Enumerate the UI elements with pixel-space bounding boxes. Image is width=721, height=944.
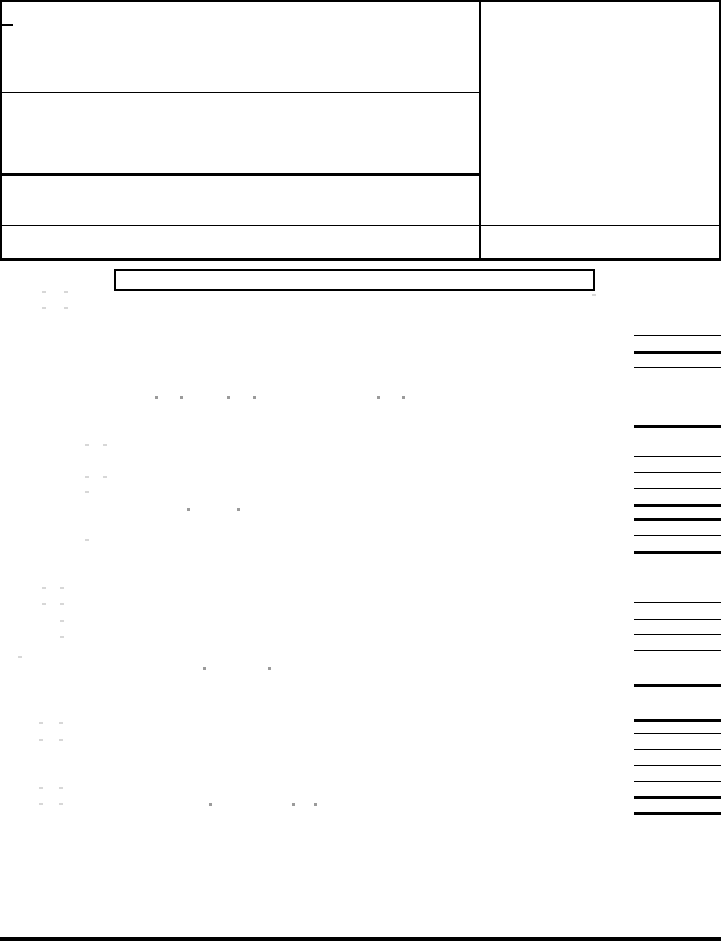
- glyph-remnant-34: [59, 787, 63, 789]
- amount-entry-rule-4: [634, 425, 721, 428]
- amount-entry-rule-16: [634, 684, 721, 687]
- glyph-remnant-10: [377, 396, 380, 399]
- glyph-remnant-12: [85, 444, 89, 446]
- amount-entry-rule-13: [634, 619, 721, 620]
- glyph-remnant-31: [39, 739, 43, 741]
- glyph-remnant-39: [314, 803, 317, 806]
- header-left-border: [0, 0, 2, 261]
- glyph-remnant-14: [85, 476, 89, 478]
- glyph-remnant-38: [292, 803, 295, 806]
- glyph-remnant-36: [59, 803, 63, 805]
- glyph-remnant-2: [64, 291, 68, 293]
- amount-entry-rule-17: [634, 719, 721, 722]
- amount-entry-rule-21: [634, 781, 721, 782]
- amount-entry-rule-3: [634, 367, 721, 368]
- amount-entry-rule-11: [634, 551, 721, 554]
- amount-entry-rule-20: [634, 765, 721, 766]
- amount-entry-rule-7: [634, 488, 721, 489]
- glyph-remnant-28: [268, 667, 271, 670]
- glyph-remnant-23: [60, 603, 64, 605]
- header-top-border: [0, 0, 721, 2]
- amount-entry-rule-2: [634, 351, 721, 354]
- amount-entry-rule-10: [634, 535, 721, 536]
- glyph-remnant-3: [42, 307, 46, 309]
- label-box: [114, 269, 595, 291]
- header-corner-tick: [0, 24, 13, 26]
- glyph-remnant-13: [103, 444, 107, 446]
- glyph-remnant-21: [60, 587, 64, 589]
- form-page: [0, 0, 721, 944]
- amount-entry-rule-9: [634, 518, 721, 521]
- header-column-divider: [479, 0, 481, 261]
- glyph-remnant-9: [253, 396, 256, 399]
- glyph-remnant-8: [227, 396, 230, 399]
- glyph-remnant-35: [39, 803, 43, 805]
- header-row-rule-3: [0, 225, 721, 226]
- glyph-remnant-20: [42, 587, 46, 589]
- glyph-remnant-17: [187, 508, 190, 511]
- glyph-remnant-29: [39, 722, 43, 724]
- amount-entry-rule-23: [634, 812, 721, 815]
- amount-entry-rule-18: [634, 733, 721, 734]
- glyph-remnant-16: [85, 491, 89, 493]
- glyph-remnant-27: [203, 667, 206, 670]
- glyph-remnant-4: [64, 307, 68, 309]
- header-bottom-rule: [0, 258, 721, 261]
- glyph-remnant-32: [59, 739, 63, 741]
- glyph-remnant-1: [42, 291, 46, 293]
- amount-entry-rule-19: [634, 749, 721, 750]
- glyph-remnant-19: [85, 539, 89, 541]
- amount-entry-rule-8: [634, 504, 721, 507]
- amount-entry-rule-22: [634, 796, 721, 799]
- glyph-remnant-7: [180, 396, 183, 399]
- page-bottom-rule: [0, 937, 721, 941]
- glyph-remnant-37: [209, 803, 212, 806]
- glyph-remnant-11: [402, 396, 405, 399]
- glyph-remnant-5: [592, 294, 596, 296]
- glyph-remnant-25: [60, 636, 64, 638]
- glyph-remnant-6: [155, 396, 158, 399]
- glyph-remnant-26: [18, 656, 22, 658]
- header-row-rule-1: [0, 92, 480, 93]
- amount-entry-rule-12: [634, 602, 721, 603]
- amount-entry-rule-14: [634, 634, 721, 635]
- glyph-remnant-22: [42, 603, 46, 605]
- glyph-remnant-30: [59, 722, 63, 724]
- glyph-remnant-24: [60, 620, 64, 622]
- glyph-remnant-33: [39, 787, 43, 789]
- amount-entry-rule-6: [634, 472, 721, 473]
- glyph-remnant-18: [237, 508, 240, 511]
- amount-entry-rule-1: [634, 335, 721, 336]
- amount-entry-rule-5: [634, 456, 721, 457]
- header-row-rule-2: [0, 173, 480, 176]
- glyph-remnant-15: [103, 476, 107, 478]
- amount-entry-rule-15: [634, 650, 721, 651]
